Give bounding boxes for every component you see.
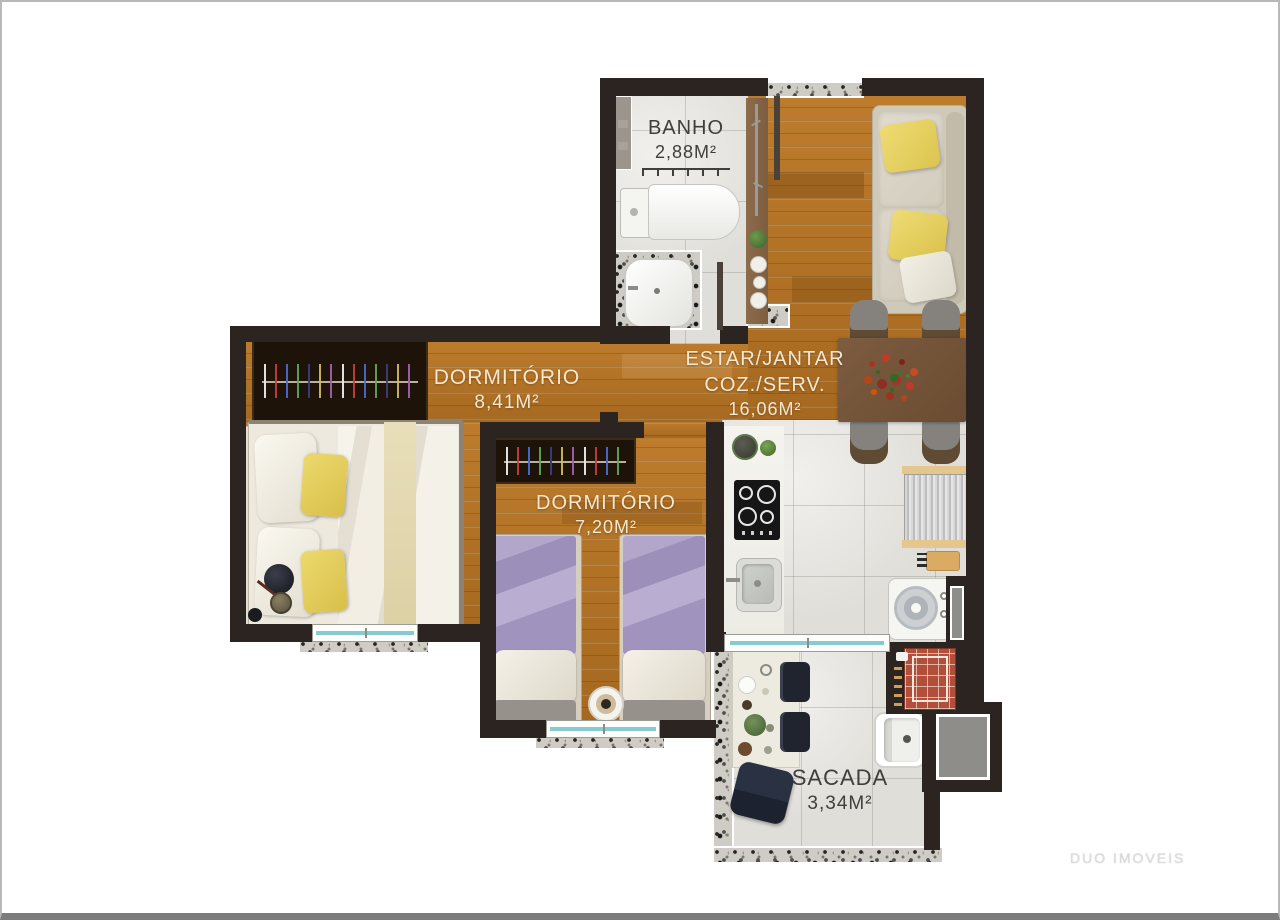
dining-chair: [922, 300, 960, 342]
bed-runner: [384, 422, 416, 630]
bbq-handle: [896, 652, 908, 661]
entry-door-leaf: [774, 96, 780, 180]
decor-pot: [738, 742, 752, 756]
dining-chair: [922, 420, 960, 464]
single-bed-pillow: [494, 650, 576, 704]
bedroom1-label: DORMITÓRIO 8,41M²: [407, 364, 607, 416]
wardrobe-hangers: [264, 364, 416, 398]
bathroom-door-leaf: [717, 262, 723, 330]
floor-plan: BANHO 2,88M² DORMITÓRIO 8,41M² DORMITÓRI…: [0, 0, 1280, 920]
window-divider: [603, 724, 605, 734]
bedroom2-left-wall: [480, 422, 496, 738]
decor-vase: [750, 256, 767, 273]
decor-dot: [764, 746, 772, 754]
toilet-flush-button: [630, 208, 638, 216]
kitchen-partition-wall: [706, 422, 724, 652]
sliding-door-divider: [807, 638, 809, 648]
exterior-wall-top-left: [600, 78, 768, 96]
cooktop-burner: [760, 510, 774, 524]
exterior-wall-right: [966, 78, 984, 652]
bedroom1-window: [312, 624, 418, 642]
fridge-counter-edge: [902, 540, 966, 548]
decor-plate: [738, 676, 756, 694]
round-rug-center: [601, 699, 611, 709]
dining-chair: [850, 300, 888, 342]
refrigerator: [904, 474, 968, 542]
laundry-tub-basin: [884, 718, 920, 762]
decor-vase: [753, 276, 766, 289]
balcony-right-wall: [924, 786, 940, 850]
balcony-chair: [780, 712, 810, 752]
room-name: BANHO: [624, 116, 748, 141]
balcony-chair: [780, 662, 810, 702]
bathroom-label: BANHO 2,88M²: [624, 116, 748, 164]
bed-pillow-yellow: [300, 453, 348, 518]
sink-drain: [754, 580, 761, 587]
bedroom2-door-threshold: [638, 422, 710, 438]
white-throw-pillow: [898, 250, 957, 304]
single-bed-duvet-purple: [623, 536, 705, 654]
yellow-throw-pillow: [879, 118, 941, 173]
bedroom1-left-wall: [230, 326, 246, 642]
bedroom2-bottom-wall-left: [480, 720, 546, 738]
bed-pillow-yellow: [300, 549, 348, 614]
decor-dot: [766, 724, 774, 732]
washer-niche-panel: [950, 586, 964, 640]
bedroom1-bottom-wall-right: [418, 624, 484, 642]
cutting-board: [926, 551, 960, 571]
room-name: DORMITÓRIO: [407, 364, 607, 391]
balcony-left-edge: [712, 648, 734, 864]
laundry-tub-drain: [903, 735, 911, 743]
bedroom1-plant: [270, 592, 292, 614]
decor-cup: [742, 700, 752, 710]
fridge-counter-edge: [902, 466, 966, 474]
sink-faucet: [726, 578, 740, 582]
balcony-plant: [744, 714, 766, 736]
kitchen-plant: [732, 434, 758, 460]
room-area: 3,34M²: [774, 792, 906, 816]
bedroom1-top-wall: [230, 326, 616, 342]
bedroom2-window: [546, 720, 660, 738]
balcony-label: SACADA 3,34M²: [774, 764, 906, 815]
shower-screen-line: [642, 168, 730, 176]
bedroom2-bottom-wall-right: [660, 720, 716, 738]
bbq-skewers: [894, 666, 902, 706]
room-area: 16,06M²: [666, 398, 864, 421]
cooktop-burner: [739, 486, 753, 500]
room-area: 7,20M²: [506, 516, 706, 539]
balcony-bottom-edge: [712, 846, 944, 864]
shaft-duct-panel: [936, 714, 990, 780]
decor-vase: [750, 292, 767, 309]
room-area: 2,88M²: [624, 141, 748, 164]
balcony-sliding-door: [724, 634, 890, 652]
cooktop-burner: [757, 485, 776, 504]
window-divider: [365, 628, 367, 638]
single-bed-pillow: [623, 650, 705, 704]
kitchen-plant: [760, 440, 776, 456]
floor-lamp-base: [248, 608, 262, 622]
bedroom2-wardrobe: [494, 438, 636, 484]
wardrobe-hangers: [506, 447, 624, 475]
room-name-line2: COZ./SERV.: [666, 372, 864, 398]
single-bed-duvet-purple: [494, 536, 576, 654]
room-name: SACADA: [774, 764, 906, 792]
watermark: DUO IMOVEIS: [1070, 850, 1185, 866]
bathroom-bottom-wall-stub: [720, 326, 748, 344]
knife-handles: [917, 553, 927, 567]
room-area: 8,41M²: [407, 391, 607, 416]
bedroom2-label: DORMITÓRIO 7,20M²: [506, 490, 706, 539]
bedroom1-bottom-wall-left: [230, 624, 312, 642]
living-kitchen-label: ESTAR/JANTAR COZ./SERV. 16,06M²: [666, 346, 864, 421]
bbq-grill-frame: [912, 656, 948, 702]
decor-bowl: [762, 688, 769, 695]
toilet-bowl: [648, 184, 740, 240]
bathtub-faucet: [628, 286, 638, 290]
bathtub-drain: [654, 288, 660, 294]
bedroom1-wardrobe: [252, 334, 428, 428]
room-name: DORMITÓRIO: [506, 490, 706, 516]
bedroom2-top-wall: [480, 422, 644, 438]
decor-plate-ring: [760, 664, 772, 676]
cooktop-burner: [738, 507, 757, 526]
bathroom-left-wall: [600, 78, 616, 344]
entry-door-threshold: [766, 81, 864, 98]
door-jamb: [706, 632, 726, 652]
washing-machine-hub: [911, 603, 921, 613]
dining-chair: [850, 420, 888, 464]
cooktop-knobs: [742, 531, 774, 535]
flower-centerpiece: [890, 374, 898, 382]
potted-plant: [749, 230, 767, 248]
room-name-line1: ESTAR/JANTAR: [666, 346, 864, 372]
